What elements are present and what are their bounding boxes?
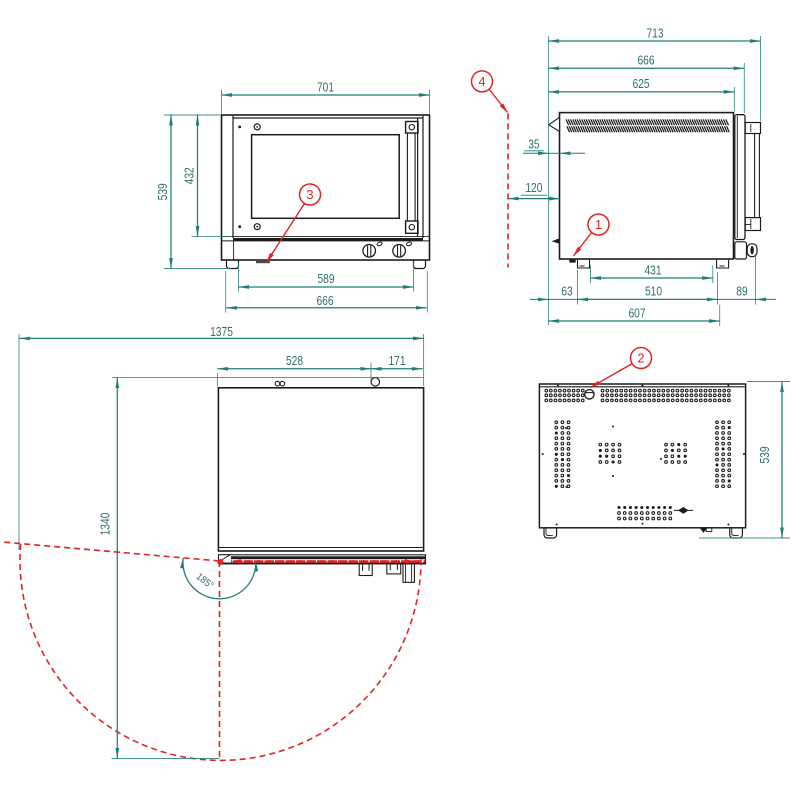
svg-text:625: 625 xyxy=(632,76,649,91)
svg-text:510: 510 xyxy=(645,284,662,299)
svg-text:63: 63 xyxy=(561,284,572,299)
svg-text:713: 713 xyxy=(646,25,663,40)
svg-text:666: 666 xyxy=(316,293,333,308)
svg-text:539: 539 xyxy=(155,183,170,200)
svg-text:701: 701 xyxy=(317,80,334,95)
svg-text:1: 1 xyxy=(595,217,602,232)
svg-text:35: 35 xyxy=(528,136,539,151)
svg-text:432: 432 xyxy=(182,167,197,184)
svg-text:171: 171 xyxy=(388,353,405,368)
svg-text:3: 3 xyxy=(306,187,313,202)
svg-text:1340: 1340 xyxy=(97,513,112,536)
svg-text:589: 589 xyxy=(317,271,334,286)
svg-text:120: 120 xyxy=(525,180,542,195)
svg-text:4: 4 xyxy=(478,74,485,89)
svg-text:431: 431 xyxy=(644,262,661,277)
svg-text:1375: 1375 xyxy=(210,324,233,339)
svg-text:607: 607 xyxy=(628,305,645,320)
svg-text:2: 2 xyxy=(637,351,644,366)
svg-text:539: 539 xyxy=(757,446,772,463)
svg-text:528: 528 xyxy=(286,353,303,368)
svg-text:89: 89 xyxy=(736,284,747,299)
svg-text:666: 666 xyxy=(637,53,654,68)
